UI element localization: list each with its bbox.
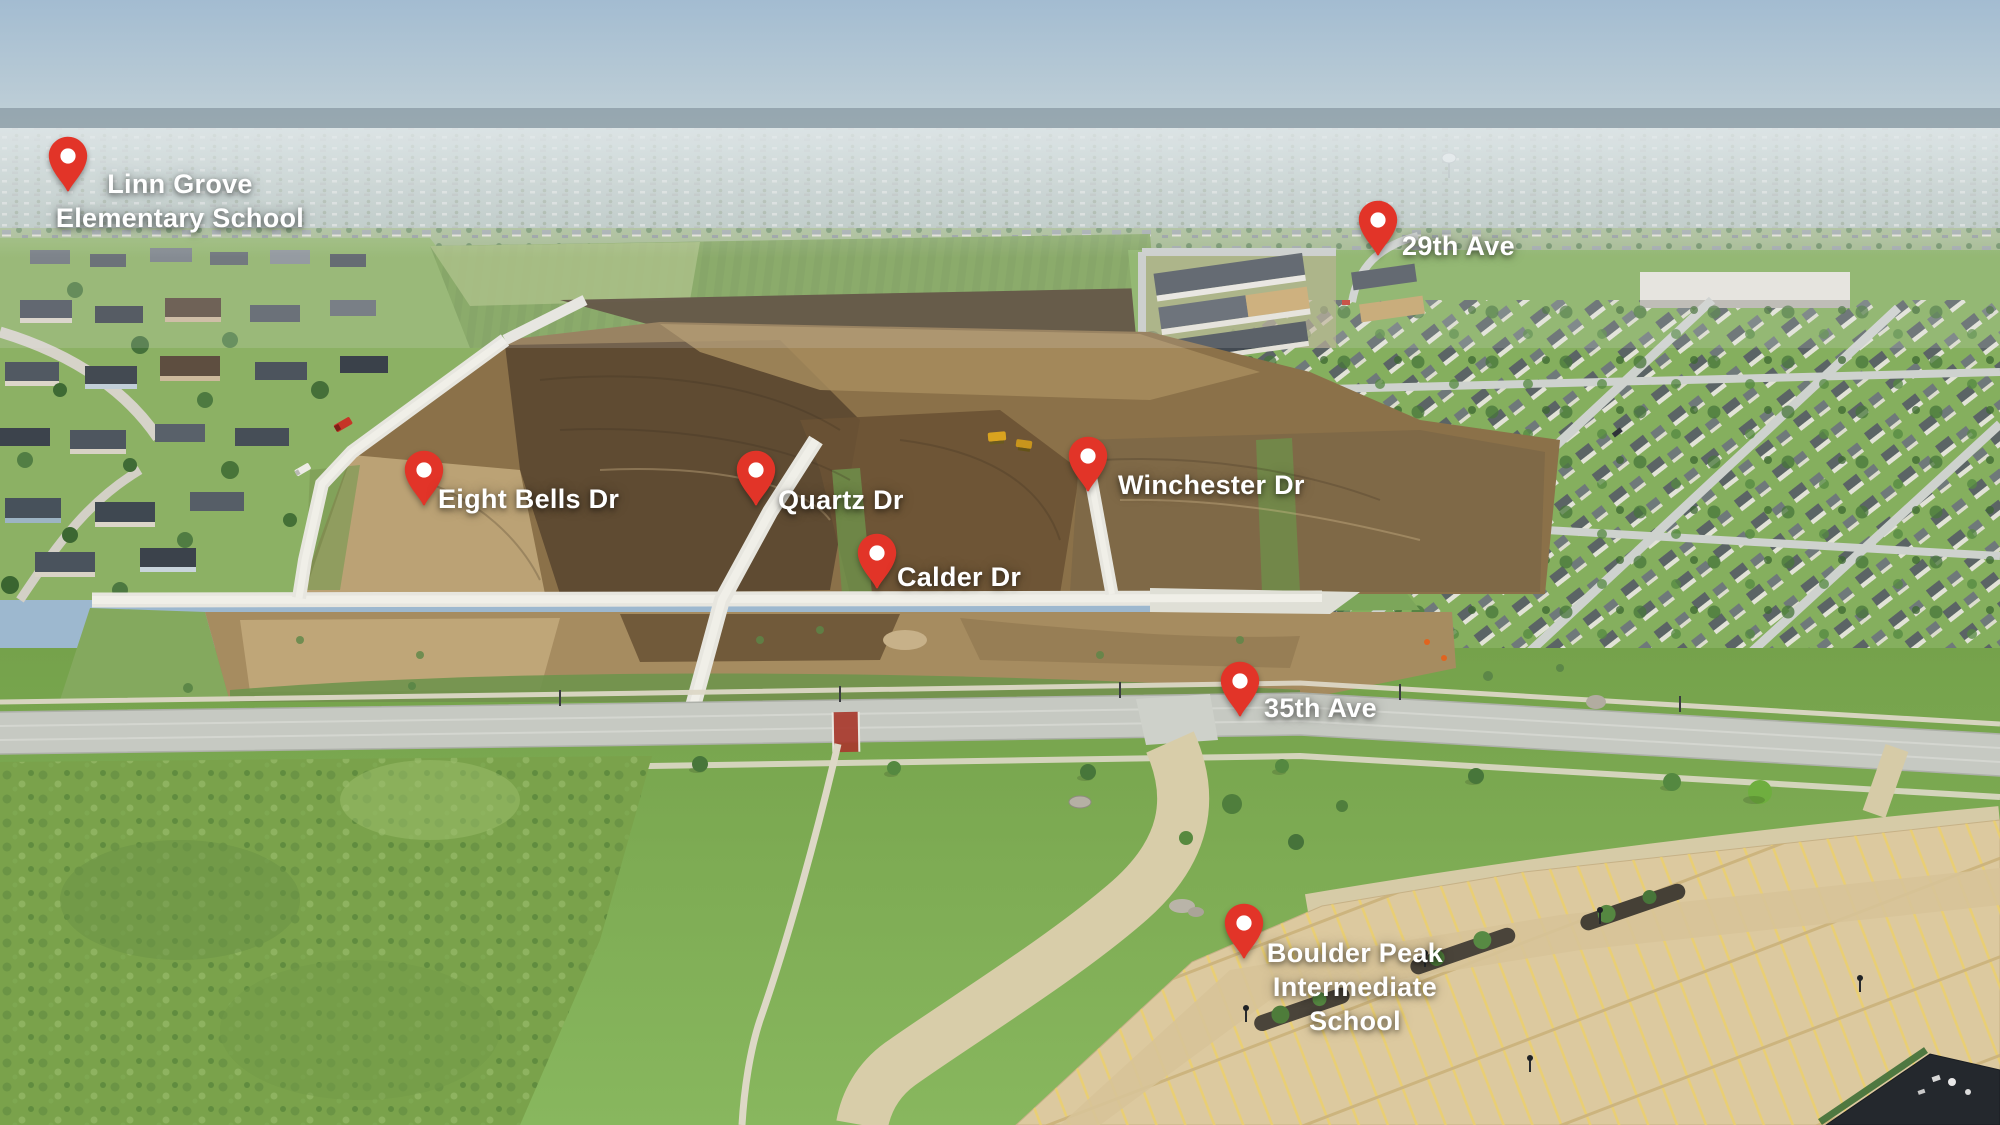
map-pin-icon [857,533,897,590]
haze-overlay [0,128,2000,348]
map-label-eight-bells-dr: Eight Bells Dr [438,482,619,516]
boulder [1586,695,1606,709]
map-label-quartz-dr: Quartz Dr [778,483,904,517]
map-label-boulder-peak-intermediate: Boulder Peak Intermediate School [1195,936,1515,1038]
rock-pile [1069,796,1091,808]
map-pin-icon [1220,661,1260,718]
traffic-cone [1441,655,1447,661]
intersection [1136,694,1218,745]
sky [0,0,2000,150]
map-pin-icon [1358,200,1398,257]
map-label-linn-grove-elementary: Linn Grove Elementary School [20,167,340,235]
aerial-map: Linn Grove Elementary School 29th Ave Ei… [0,0,2000,1125]
map-pin-icon [736,450,776,507]
map-label-29th-ave: 29th Ave [1402,229,1515,263]
map-label-winchester-dr: Winchester Dr [1118,468,1305,502]
traffic-cone [1424,639,1430,645]
map-label-35th-ave: 35th Ave [1264,691,1377,725]
map-label-calder-dr: Calder Dr [897,560,1021,594]
map-pin-icon [1068,436,1108,493]
